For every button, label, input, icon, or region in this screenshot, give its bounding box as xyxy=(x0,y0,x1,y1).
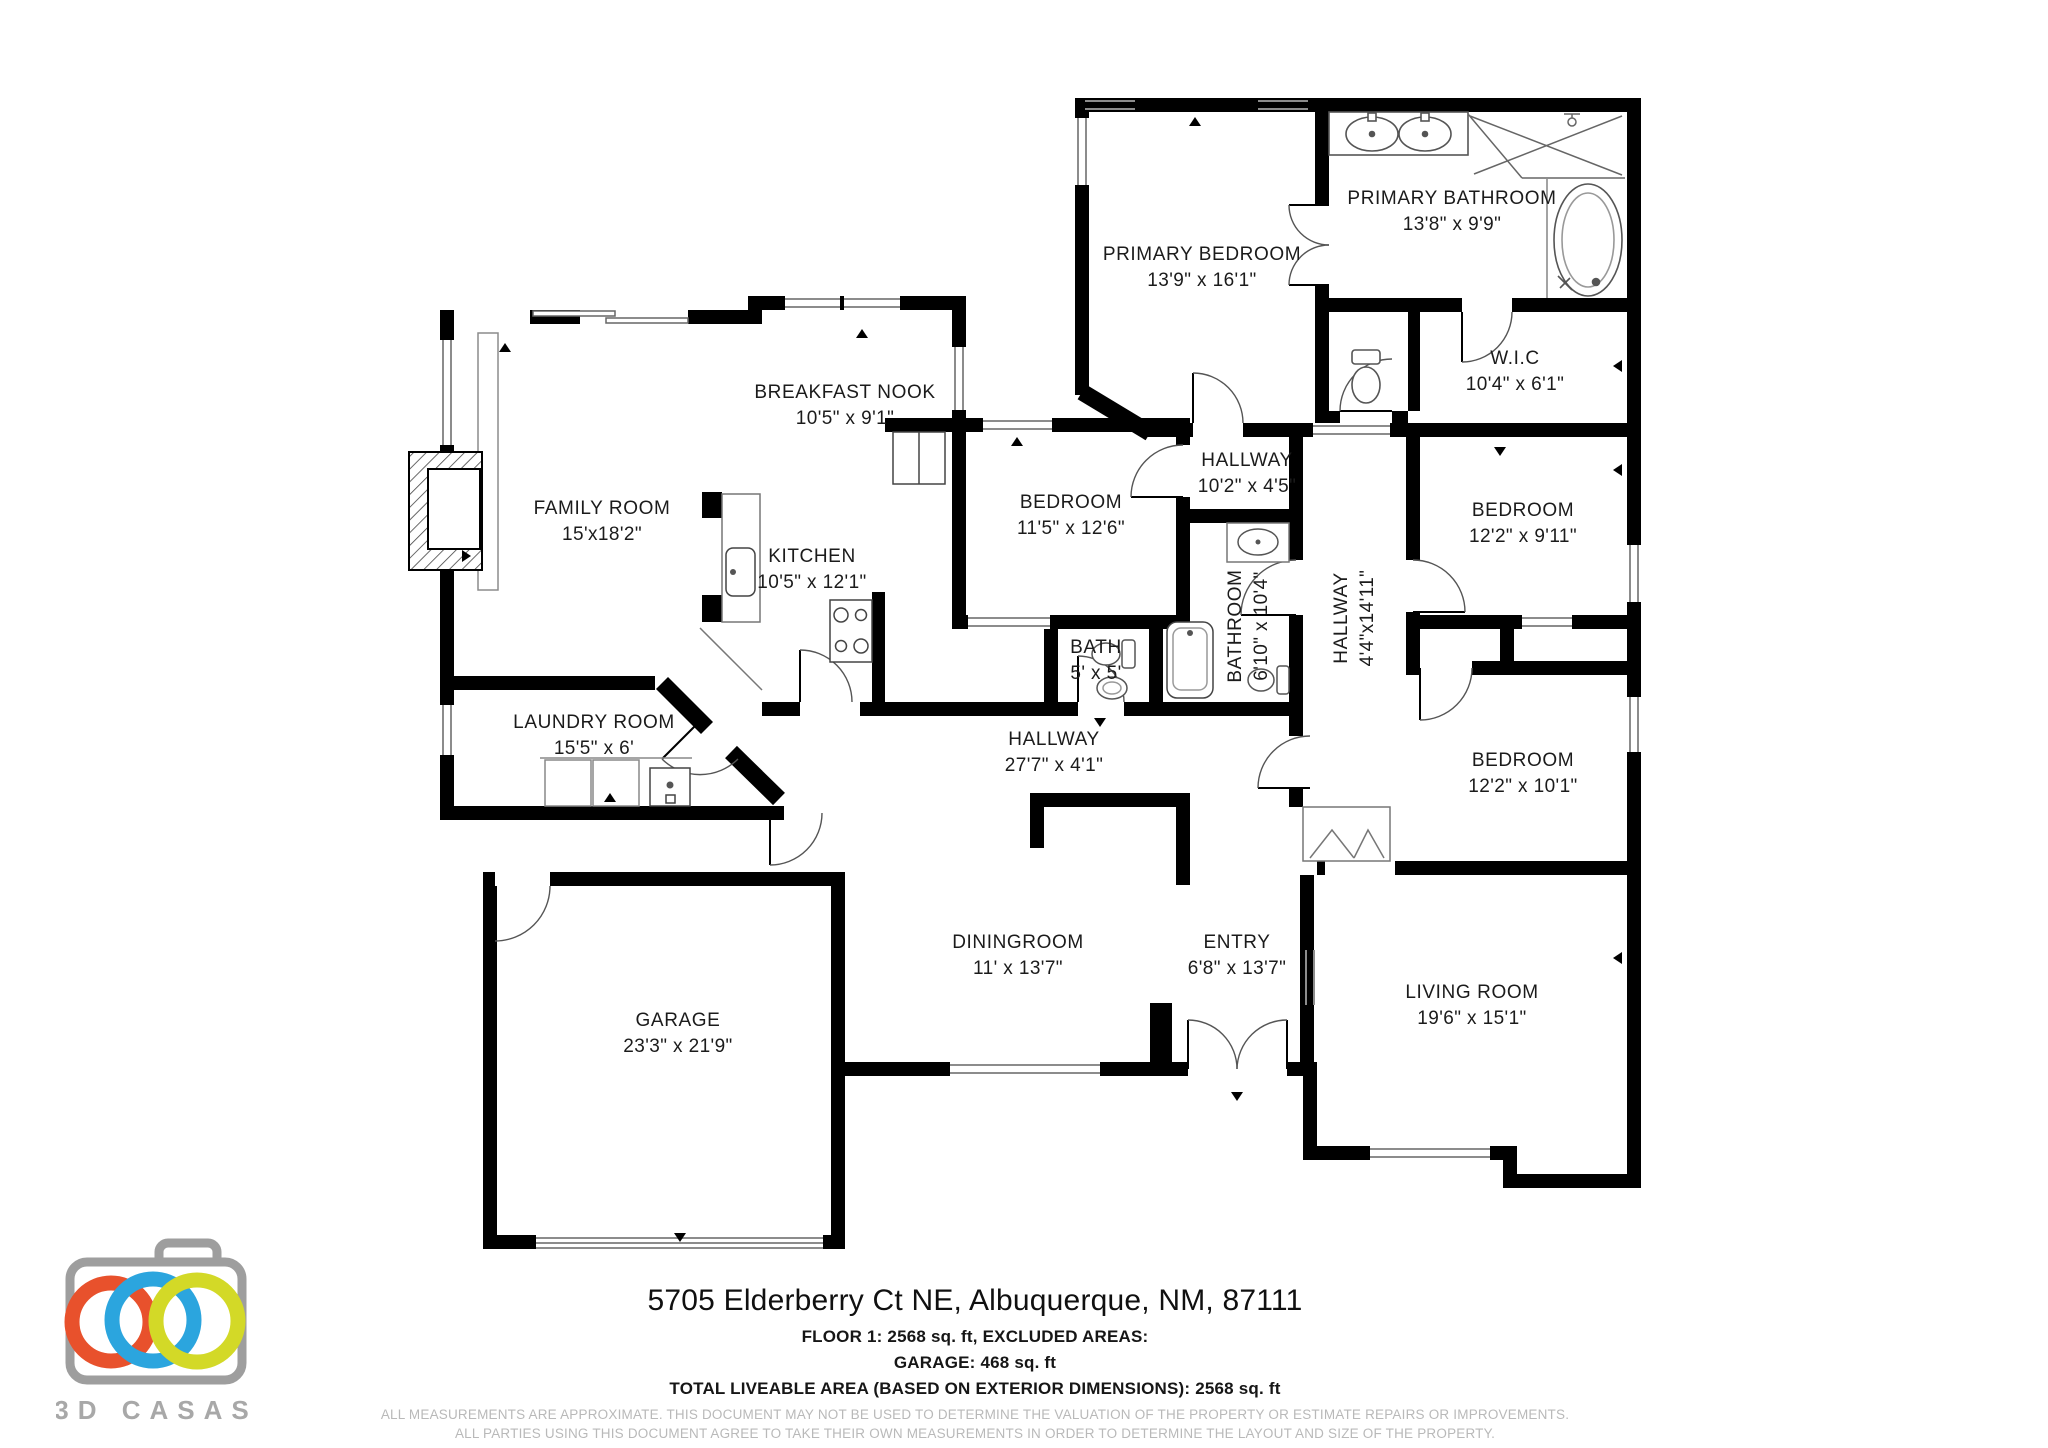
garage-area-line: GARAGE: 468 sq. ft xyxy=(275,1353,1675,1373)
bathtub-icon xyxy=(1547,178,1622,298)
total-area-line: TOTAL LIVEABLE AREA (BASED ON EXTERIOR D… xyxy=(275,1379,1675,1399)
room-label-hallway-upper: HALLWAY10'2" x 4'5" xyxy=(1198,448,1296,500)
room-label-kitchen: KITCHEN10'5" x 12'1" xyxy=(757,544,866,596)
toilet-icon xyxy=(1352,350,1380,403)
walls-group xyxy=(440,98,1641,1249)
footer: 5705 Elderberry Ct NE, Albuquerque, NM, … xyxy=(275,1284,1675,1443)
address-title: 5705 Elderberry Ct NE, Albuquerque, NM, … xyxy=(275,1284,1675,1318)
vanity-sinks-icon xyxy=(1329,112,1468,155)
room-label-living-room: LIVING ROOM19'6" x 15'1" xyxy=(1405,980,1538,1032)
room-label-bathroom: BATHROOM6'10" x 10'4" xyxy=(1223,569,1275,682)
room-label-bath: BATH5' x 5' xyxy=(1070,635,1122,687)
room-label-bedroom-ne: BEDROOM12'2" x 9'11" xyxy=(1469,498,1577,550)
room-label-entry: ENTRY6'8" x 13'7" xyxy=(1188,930,1286,982)
stove-icon xyxy=(830,600,872,662)
fireplace-icon xyxy=(409,452,482,570)
room-label-diningroom: DININGROOM11' x 13'7" xyxy=(952,930,1084,982)
camera-logo-icon xyxy=(70,1243,242,1380)
room-label-wic: W.I.C10'4" x 6'1" xyxy=(1466,346,1564,398)
laundry-sink-icon xyxy=(650,768,690,806)
disclaimer-line-1: ALL MEASUREMENTS ARE APPROXIMATE. THIS D… xyxy=(275,1405,1675,1424)
disclaimer-line-2: ALL PARTIES USING THIS DOCUMENT AGREE TO… xyxy=(275,1424,1675,1443)
kitchen-sink-icon xyxy=(722,494,760,622)
fridge-icon xyxy=(893,432,945,484)
brand-text: 3D CASAS xyxy=(56,1395,258,1425)
windows-group xyxy=(443,101,1638,1249)
room-label-hallway-tall: HALLWAY4'4"x14'11" xyxy=(1329,570,1381,667)
floor-plan-page: PRIMARY BEDROOM13'9" x 16'1"PRIMARY BATH… xyxy=(0,0,2048,1448)
shower-icon xyxy=(1468,114,1625,178)
floor-area-line: FLOOR 1: 2568 sq. ft, EXCLUDED AREAS: xyxy=(275,1327,1675,1347)
closet-bifold-icon xyxy=(1303,807,1390,861)
kitchen-counter-edge xyxy=(700,628,762,690)
brand-logo: 3D CASAS xyxy=(56,1236,266,1431)
room-label-primary-bedroom: PRIMARY BEDROOM13'9" x 16'1" xyxy=(1103,242,1301,294)
room-label-bedroom-mid: BEDROOM11'5" x 12'6" xyxy=(1017,490,1125,542)
room-label-primary-bathroom: PRIMARY BATHROOM13'8" x 9'9" xyxy=(1347,186,1556,238)
floorplan-svg xyxy=(0,0,2048,1448)
room-label-bedroom-se: BEDROOM12'2" x 10'1" xyxy=(1468,748,1577,800)
room-label-breakfast-nook: BREAKFAST NOOK10'5" x 9'1" xyxy=(754,380,935,432)
room-label-family-room: FAMILY ROOM15'x18'2" xyxy=(534,496,671,548)
room-label-hallway-main: HALLWAY27'7" x 4'1" xyxy=(1005,727,1103,779)
room-label-laundry-room: LAUNDRY ROOM15'5" x 6' xyxy=(513,710,675,762)
room-label-garage: GARAGE23'3" x 21'9" xyxy=(623,1008,732,1060)
